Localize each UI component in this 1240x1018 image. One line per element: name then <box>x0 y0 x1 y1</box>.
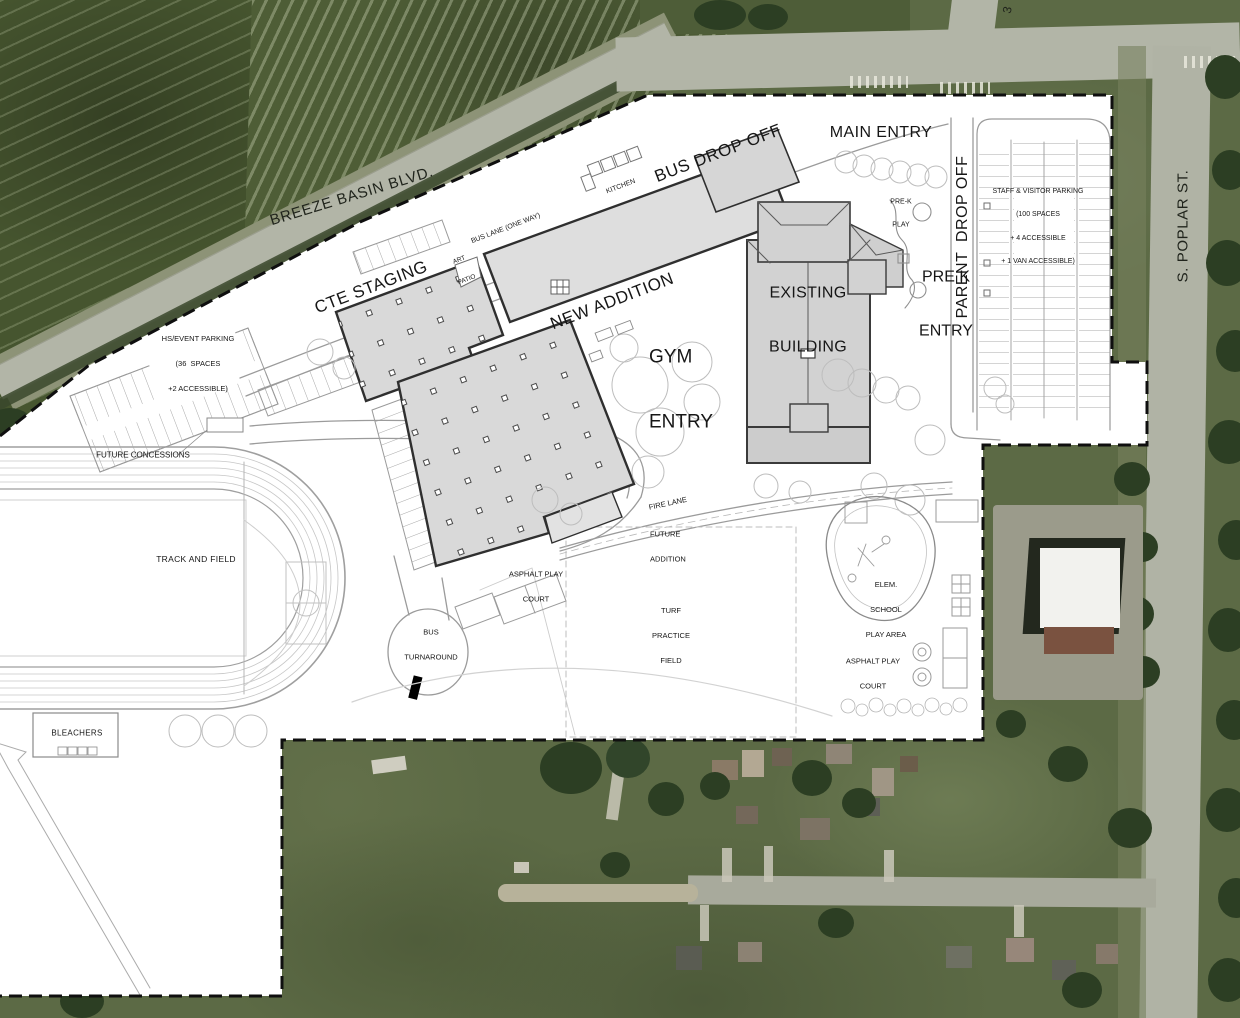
label-fire-lane: FIRE LANE <box>648 496 688 512</box>
label-cte-staging: CTE STAGING <box>312 257 430 318</box>
label-line: HS/EVENT PARKING <box>162 335 235 343</box>
label-line: ENTRY <box>649 412 713 434</box>
label-line: TURF <box>652 607 690 615</box>
label-line: EXISTING <box>769 284 847 302</box>
label-line: SCHOOL <box>866 606 907 614</box>
label-bus-lane: BUS LANE (ONE WAY) <box>470 212 541 246</box>
label-line: +2 ACCESSIBLE) <box>162 385 235 393</box>
label-line: BUS <box>404 628 457 636</box>
label-line: STAFF & VISITOR PARKING <box>992 188 1083 196</box>
label-line: FIELD <box>652 657 690 665</box>
label-future-concessions: FUTURE CONCESSIONS <box>96 452 190 461</box>
label-turf-practice-field: TURF PRACTICE FIELD <box>652 590 690 682</box>
label-line: BUILDING <box>769 338 847 356</box>
site-plan-sheet: BREEZE BASIN BLVD. S. POPLAR ST. 3 BUS D… <box>0 0 1240 1018</box>
label-line: COURT <box>846 682 900 690</box>
label-future-addition: FUTURE ADDITION <box>650 513 686 580</box>
label-asphalt-play-court-center: ASPHALT PLAY COURT <box>509 553 563 620</box>
label-asphalt-play-court-east: ASPHALT PLAY COURT <box>846 640 900 707</box>
label-line: ASPHALT PLAY <box>846 657 900 665</box>
label-line: PLAY AREA <box>866 631 907 639</box>
label-line: ELEM. <box>866 581 907 589</box>
plan-labels: BREEZE BASIN BLVD. S. POPLAR ST. 3 BUS D… <box>0 0 1240 1018</box>
label-line: TURNAROUND <box>404 653 457 661</box>
label-line: (36 SPACES <box>162 360 235 368</box>
label-staff-visitor-parking: STAFF & VISITOR PARKING (100 SPACES + 4 … <box>992 172 1083 282</box>
label-gym-entry: GYM ENTRY <box>649 303 713 478</box>
label-line: ART <box>449 253 469 266</box>
street-label-s-poplar-st: S. POPLAR ST. <box>1176 170 1193 283</box>
label-pre-k-entry: PRE K ENTRY <box>919 232 973 375</box>
label-line: PRACTICE <box>652 632 690 640</box>
label-line: PATIO <box>457 273 477 286</box>
label-kitchen: KITCHEN <box>605 178 636 196</box>
street-label-partial-number: 3 <box>1001 5 1016 14</box>
label-line: PRE-K <box>890 198 911 206</box>
label-art-patio: ART PATIO <box>444 240 482 301</box>
label-line: GYM <box>649 346 713 368</box>
street-label-breeze-basin-blvd: BREEZE BASIN BLVD. <box>268 164 435 230</box>
label-line: + 1 VAN ACCESSIBLE) <box>992 258 1083 266</box>
label-line: PLAY <box>890 222 911 230</box>
label-bus-turnaround: BUS TURNAROUND <box>404 611 457 678</box>
label-bus-drop-off: BUS DROP OFF <box>652 120 784 186</box>
label-line: FUTURE <box>650 530 686 538</box>
label-main-entry: MAIN ENTRY <box>830 124 932 142</box>
label-track-and-field: TRACK AND FIELD <box>156 555 236 565</box>
label-line: PRE K <box>919 268 973 286</box>
label-line: (100 SPACES <box>992 211 1083 219</box>
label-line: ADDITION <box>650 555 686 563</box>
label-line: COURT <box>509 595 563 603</box>
label-line: ASPHALT PLAY <box>509 570 563 578</box>
label-bleachers: BLEACHERS <box>51 730 102 739</box>
label-pre-k-play: PRE-K PLAY <box>890 183 911 246</box>
label-hs-event-parking: HS/EVENT PARKING (36 SPACES +2 ACCESSIBL… <box>162 318 235 410</box>
label-line: + 4 ACCESSIBLE <box>992 235 1083 243</box>
label-line: ENTRY <box>919 322 973 340</box>
label-existing-building: EXISTING BUILDING <box>769 248 847 391</box>
